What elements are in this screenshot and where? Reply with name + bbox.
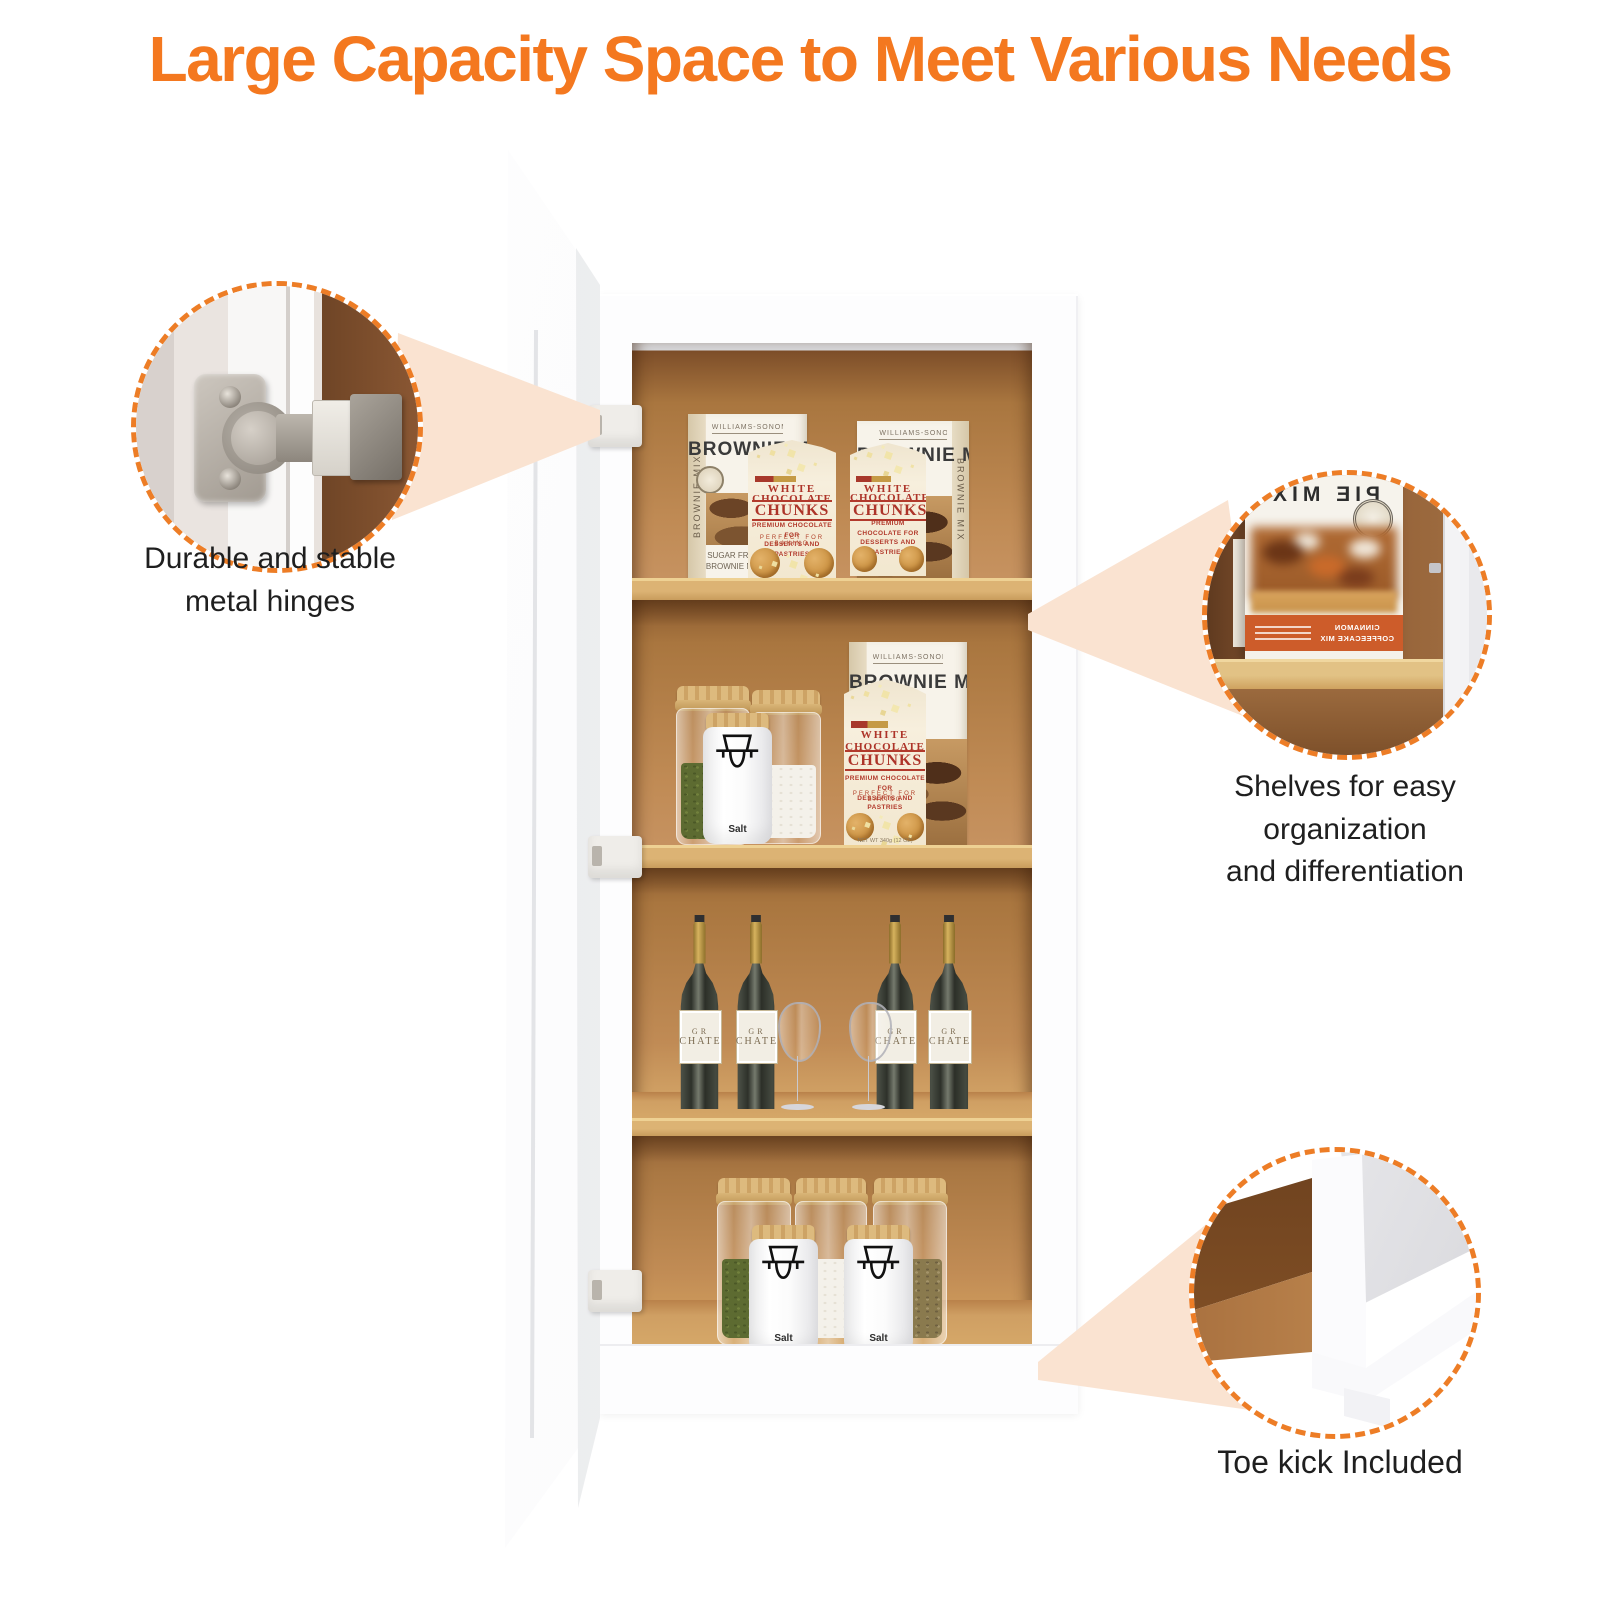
- salt-jar-label: Salt: [703, 824, 772, 835]
- bag-arc-text: PERFECT FOR BAKING: [748, 535, 836, 547]
- hinge-detail-callout: [131, 281, 423, 573]
- wine-foil: [750, 915, 762, 964]
- hinge-screw: [219, 386, 241, 408]
- cookie-photo: [899, 546, 925, 572]
- chocolate-chunks-bag: WHITE CHOCOLATE CHUNKS PREMIUM CHOCOLATE…: [844, 679, 926, 846]
- cookie-photo: [750, 548, 780, 578]
- under-shelf: [1207, 689, 1443, 759]
- wine-glass: [845, 1002, 892, 1110]
- hinge-caption: Durable and stable metal hinges: [70, 538, 470, 623]
- wine-bottle-overlay: GRCHATE: [921, 915, 977, 1109]
- door-shadow-band: [136, 286, 174, 568]
- pie-band-text: CINNAMON COFFEECAKE MIX: [1311, 622, 1403, 645]
- jar-clip-icon: [852, 1243, 904, 1302]
- jar-clip-icon: [711, 731, 763, 791]
- salt-jar-label: Salt: [749, 1333, 818, 1344]
- bag-title-line3: CHUNKS: [850, 502, 926, 520]
- brownie-box-brand: WILLIAMS-SONOMA: [879, 430, 946, 440]
- shelf-edge: [1207, 659, 1443, 689]
- wine-label: GRCHATE: [928, 1010, 971, 1064]
- cabinet-frame-strip: [1443, 475, 1471, 755]
- pie-crust-photo: [1251, 591, 1397, 613]
- bag-arc-text: PERFECT FOR BAKING: [844, 791, 926, 803]
- pie-photo: [1251, 527, 1397, 599]
- bag-banner: [851, 721, 889, 729]
- hinge-middle: [588, 836, 642, 878]
- wine-foil: [889, 915, 901, 964]
- chocolate-chunks-decoration: [789, 560, 798, 569]
- chocolate-chunks-decoration: [787, 449, 796, 458]
- cabinet-shelf-1: [632, 578, 1032, 600]
- wine-bottle-overlay: GRCHATE: [672, 915, 727, 1109]
- bag-banner: [856, 476, 891, 482]
- cookie-photo: [804, 548, 834, 578]
- wine-glass: [774, 1002, 821, 1110]
- salt-jar: Salt: [703, 713, 772, 844]
- wine-foil: [693, 915, 705, 964]
- chocolate-chunks-decoration: [882, 821, 891, 830]
- chocolate-chunks-decoration: [881, 690, 890, 699]
- pie-box-band: CINNAMON COFFEECAKE MIX: [1245, 615, 1403, 651]
- chocolate-chunks-decoration: [884, 451, 893, 460]
- chocolate-chunks-bag: WHITE CHOCOLATE CHUNKS PREMIUM CHOCOLATE…: [748, 440, 836, 582]
- wine-label: GRCHATE: [736, 1010, 778, 1064]
- door-strip: [1469, 475, 1489, 755]
- cabinet-bottom-rail: [600, 1344, 1078, 1414]
- jar-clip-icon: [757, 1243, 809, 1302]
- hinge-bottom: [588, 1270, 642, 1312]
- salt-jar: Salt: [749, 1225, 818, 1353]
- bag-title-line3: CHUNKS: [748, 502, 836, 520]
- product-infographic: Large Capacity Space to Meet Various Nee…: [0, 0, 1600, 1600]
- toekick-caption: Toe kick Included: [1140, 1440, 1540, 1485]
- cabinet-shelf-3: [632, 1118, 1032, 1136]
- chocolate-chunks-bag: WHITE CHOCOLATE CHUNKS PREMIUM CHOCOLATE…: [850, 443, 926, 576]
- wine-label: GRCHATE: [679, 1010, 722, 1064]
- brownie-box-badge-icon: [696, 466, 724, 494]
- hinge-screw: [219, 468, 241, 490]
- hinge-bracket: [350, 394, 402, 480]
- cabinet-shelf-2: [632, 845, 1032, 868]
- salt-jar: Salt: [844, 1225, 913, 1353]
- shelf-pin: [1429, 563, 1441, 573]
- bag-banner: [755, 476, 795, 482]
- cookie-photo: [852, 546, 878, 572]
- shelf-detail-callout: PIE MIX CINNAMON COFFEECAKE MIX: [1202, 470, 1492, 760]
- bag-title-line1: WHITE: [844, 729, 926, 741]
- wine-foil: [943, 915, 955, 964]
- shelves-caption: Shelves for easy organization and differ…: [1145, 766, 1545, 894]
- brownie-box-brand: WILLIAMS-SONOMA: [712, 424, 783, 434]
- pie-mix-box: PIE MIX CINNAMON COFFEECAKE MIX: [1245, 475, 1403, 659]
- hinge-plastic-block: [312, 400, 354, 476]
- toekick-detail-callout: [1189, 1147, 1481, 1439]
- bag-net-weight: NET WT 340g (12 OZ): [844, 838, 926, 844]
- brownie-box-brand: WILLIAMS-SONOMA: [873, 654, 944, 664]
- bag-title-line3: CHUNKS: [844, 752, 926, 770]
- salt-jar-label: Salt: [844, 1333, 913, 1344]
- page-title: Large Capacity Space to Meet Various Nee…: [0, 22, 1600, 96]
